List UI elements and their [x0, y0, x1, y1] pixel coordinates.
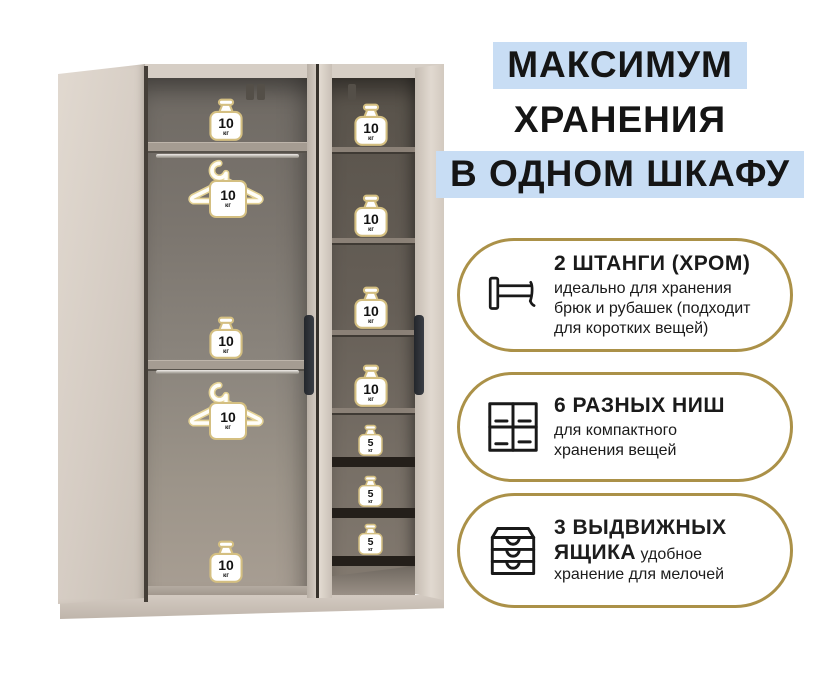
hinge-mark: [257, 84, 265, 100]
weight-unit: кг: [368, 397, 374, 404]
hanger-with-weight: 10 кг: [176, 156, 276, 242]
weight-value: 5: [368, 537, 374, 548]
weight-badge-10kg: 10 кг: [354, 286, 388, 330]
weight-unit: кг: [223, 349, 229, 356]
headline-line: МАКСИМУМ: [493, 42, 747, 89]
compartments-grid-icon: [487, 401, 539, 453]
weight-value: 10: [363, 212, 379, 226]
drawer-slot: [332, 457, 415, 467]
hanger-with-weight: 10 кг: [176, 378, 276, 464]
weight-unit: кг: [368, 319, 374, 326]
weight-unit: кг: [368, 449, 373, 454]
weight-badge-10kg: 10 кг: [209, 180, 247, 218]
weight-unit: кг: [368, 548, 373, 553]
weight-unit: кг: [368, 500, 373, 505]
feature-card-niches: 6 РАЗНЫХ НИШ для компактного хранения ве…: [457, 372, 793, 482]
weight-value: 10: [218, 334, 234, 348]
feature-title: 6 РАЗНЫХ НИШ: [554, 393, 725, 418]
weight-value: 5: [368, 489, 374, 500]
weight-unit: кг: [368, 136, 374, 143]
weight-unit: кг: [368, 227, 374, 234]
weight-badge-10kg: 10 кг: [209, 316, 243, 360]
weight-badge-5kg: 5 кг: [358, 475, 383, 508]
weight-value: 10: [220, 188, 236, 202]
weight-badge-10kg: 10 кг: [209, 402, 247, 440]
weight-badge-5kg: 5 кг: [358, 424, 383, 457]
middle-door-edge: [319, 64, 332, 598]
wardrobe-open-door: [58, 64, 145, 604]
weight-badge-10kg: 10 кг: [209, 98, 243, 142]
hinge-mark: [246, 84, 254, 100]
weight-unit: кг: [223, 573, 229, 580]
weight-badge-10kg: 10 кг: [354, 103, 388, 147]
shelf: [332, 330, 415, 337]
door-gap: [144, 66, 148, 602]
drawer-slot: [332, 508, 415, 518]
wardrobe-illustration: 10 кг 10 кг: [58, 62, 446, 622]
shelf: [332, 147, 415, 154]
weight-unit: кг: [223, 131, 229, 138]
hinge-mark: [348, 84, 356, 100]
weight-value: 10: [218, 558, 234, 572]
drawer-slot: [332, 556, 415, 566]
shelf: [148, 142, 307, 153]
compartment-floor: [148, 586, 307, 595]
clothes-rail-icon: [486, 274, 540, 316]
feature-card-drawers: 3 ВЫДВИЖНЫХ ЯЩИКА удобное хранение для м…: [457, 493, 793, 608]
door-handle: [304, 315, 314, 395]
weight-value: 10: [218, 116, 234, 130]
product-infographic: 10 кг 10 кг: [0, 0, 816, 700]
shelf: [332, 408, 415, 415]
headline-line: В ОДНОМ ШКАФУ: [436, 151, 804, 198]
weight-value: 10: [363, 304, 379, 318]
headline: МАКСИМУМ ХРАНЕНИЯ В ОДНОМ ШКАФУ: [448, 42, 792, 198]
weight-value: 10: [363, 121, 379, 135]
weight-badge-5kg: 5 кг: [358, 523, 383, 556]
weight-badge-10kg: 10 кг: [354, 194, 388, 238]
feature-description: для компактного хранения вещей: [554, 421, 724, 461]
feature-text: 3 ВЫДВИЖНЫХ ЯЩИКА удобное хранение для м…: [554, 516, 750, 585]
headline-line: ХРАНЕНИЯ: [500, 97, 740, 144]
shelf: [332, 238, 415, 245]
clothes-rod: [156, 370, 299, 374]
door-handle: [414, 315, 424, 395]
weight-value: 10: [363, 382, 379, 396]
feature-title: 2 ШТАНГИ (ХРОМ): [554, 251, 754, 276]
weight-value: 5: [368, 438, 374, 449]
wardrobe-top-edge: [144, 64, 444, 78]
drawers-icon: [486, 522, 540, 580]
weight-unit: кг: [225, 203, 231, 210]
weight-unit: кг: [225, 425, 231, 432]
feature-card-rails: 2 ШТАНГИ (ХРОМ) идеально для хранения бр…: [457, 238, 793, 352]
weight-badge-10kg: 10 кг: [209, 540, 243, 584]
weight-value: 10: [220, 410, 236, 424]
weight-badge-10kg: 10 кг: [354, 364, 388, 408]
feature-description: идеально для хранения брюк и рубашек (по…: [554, 279, 754, 338]
